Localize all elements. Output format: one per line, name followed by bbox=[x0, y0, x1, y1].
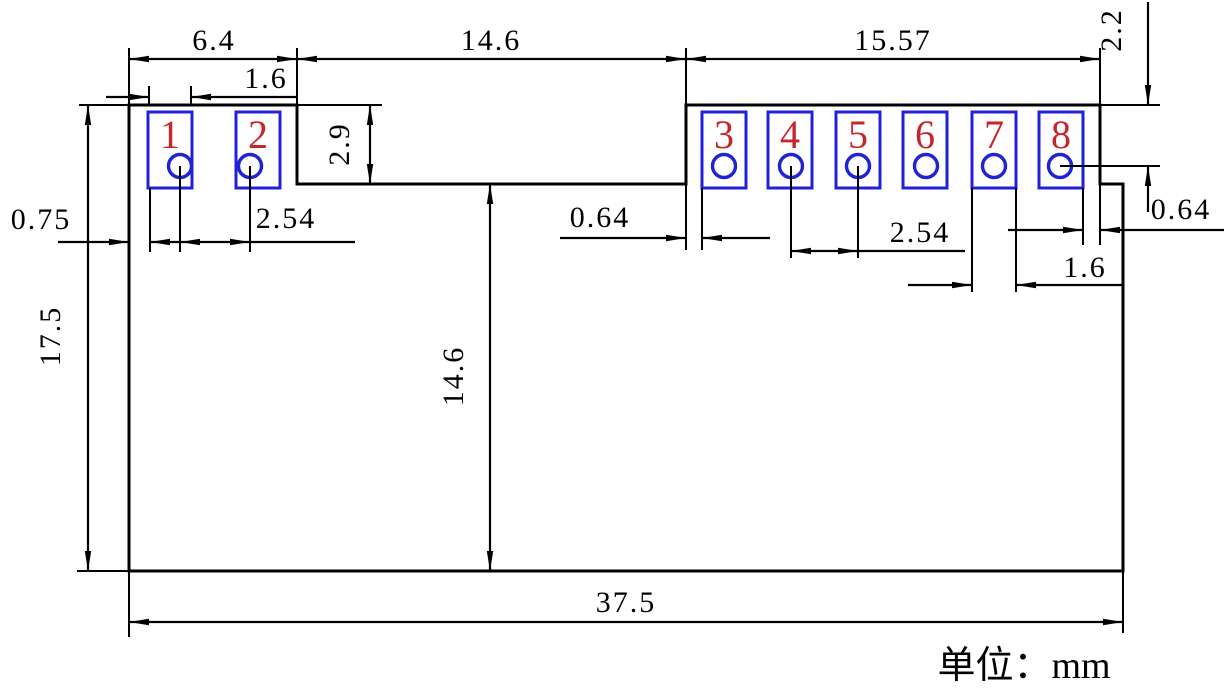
pad-1: 1 bbox=[148, 112, 192, 188]
dim-notch-to-bottom: 14.6 bbox=[437, 184, 490, 571]
pad-6-hole bbox=[915, 155, 938, 178]
pad-7-hole bbox=[983, 155, 1006, 178]
dim-body-width: 37.5 bbox=[129, 586, 1123, 622]
pad-5-number: 5 bbox=[848, 112, 868, 157]
pad-6-number: 6 bbox=[915, 112, 935, 157]
dim-pad1-width: 1.6 bbox=[106, 62, 297, 97]
dim-top-edge-to-hole8: 2.2 bbox=[1095, 2, 1148, 212]
dim-notch-depth: 2.9 bbox=[323, 105, 370, 184]
dim-notch-width-label: 14.6 bbox=[461, 24, 522, 57]
dim-pad8-to-step: 0.64 bbox=[1008, 193, 1224, 230]
dim-top-edge-to-hole8-label: 2.2 bbox=[1095, 8, 1128, 52]
pad-3: 3 bbox=[702, 112, 746, 188]
dim-notch-width: 14.6 bbox=[297, 24, 686, 59]
dim-right-section-width-label: 15.57 bbox=[854, 24, 932, 57]
dim-body-height: 17.5 bbox=[34, 105, 88, 571]
module-body-outline bbox=[129, 105, 1123, 571]
dim-left-section-width-label: 6.4 bbox=[192, 24, 236, 57]
dim-notch-to-pad3: 0.64 bbox=[560, 201, 770, 238]
pad-2-number: 2 bbox=[248, 112, 268, 157]
pad-6: 6 bbox=[903, 112, 947, 188]
pad-8: 8 bbox=[1039, 112, 1083, 188]
pad-3-hole bbox=[713, 155, 736, 178]
pad-3-number: 3 bbox=[714, 112, 734, 157]
dim-left-edge-to-pad1-label: 0.75 bbox=[11, 203, 72, 236]
dim-notch-to-pad3-label: 0.64 bbox=[570, 201, 631, 234]
dim-hole-pitch-right: 2.54 bbox=[791, 216, 965, 251]
pad-2: 2 bbox=[236, 112, 280, 188]
dim-hole-pitch-left-label: 2.54 bbox=[256, 202, 317, 235]
pad-8-number: 8 bbox=[1051, 112, 1071, 157]
pad-7-number: 7 bbox=[984, 112, 1004, 157]
pad-4-number: 4 bbox=[780, 112, 800, 157]
dim-hole-pitch-left: 2.54 bbox=[180, 202, 355, 242]
drawing-svg: 1 2 3 4 5 6 7 8 bbox=[0, 0, 1225, 692]
dim-pad7-width-label: 1.6 bbox=[1063, 251, 1107, 284]
dim-body-width-label: 37.5 bbox=[596, 586, 657, 619]
dimension-drawing: 1 2 3 4 5 6 7 8 bbox=[0, 0, 1225, 692]
dim-right-section-width: 15.57 bbox=[686, 24, 1100, 59]
dim-notch-to-bottom-label: 14.6 bbox=[437, 346, 470, 407]
dim-left-edge-to-pad1: 0.75 bbox=[11, 203, 180, 242]
dim-notch-depth-label: 2.9 bbox=[323, 122, 356, 166]
dim-body-height-label: 17.5 bbox=[34, 306, 67, 367]
dim-hole-pitch-right-label: 2.54 bbox=[890, 216, 951, 249]
dim-left-section-width: 6.4 bbox=[129, 24, 297, 59]
pad-7: 7 bbox=[972, 112, 1016, 188]
unit-note: 单位：mm bbox=[937, 645, 1110, 687]
dim-pad8-to-step-label: 0.64 bbox=[1151, 193, 1212, 226]
dim-pad1-width-label: 1.6 bbox=[244, 62, 288, 95]
pad-1-number: 1 bbox=[160, 112, 180, 157]
